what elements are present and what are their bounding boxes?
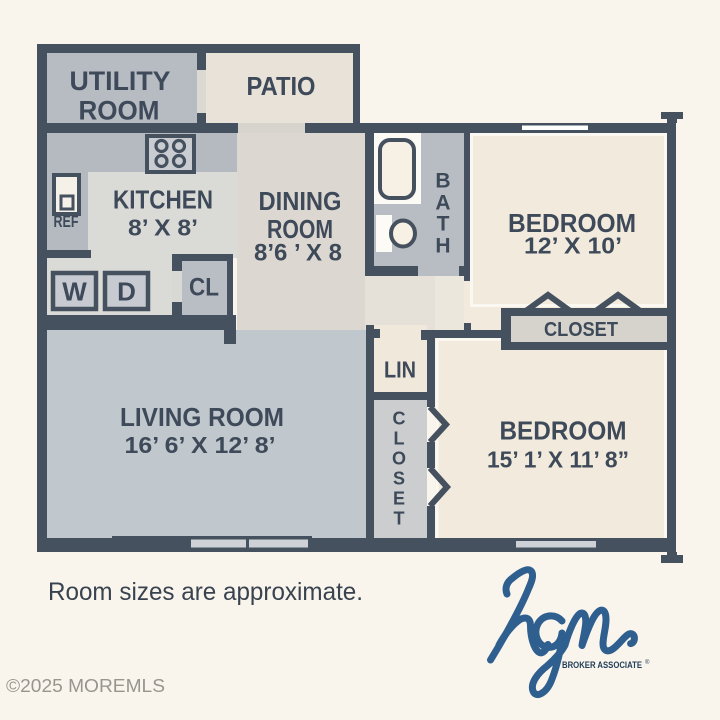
svg-text:B: B: [435, 170, 450, 193]
svg-text:CL: CL: [189, 274, 219, 302]
svg-text:BEDROOM: BEDROOM: [500, 415, 627, 445]
svg-text:L: L: [394, 429, 405, 449]
svg-text:Room sizes are approximate.: Room sizes are approximate.: [48, 578, 363, 606]
svg-text:UTILITY: UTILITY: [70, 66, 171, 96]
svg-text:8’ X 8’: 8’ X 8’: [128, 215, 198, 241]
svg-text:W: W: [62, 276, 87, 306]
svg-text:ROOM: ROOM: [79, 96, 160, 126]
svg-text:H: H: [435, 235, 450, 258]
svg-text:C: C: [393, 409, 406, 429]
svg-text:15’ 1’ X 11’ 8”: 15’ 1’ X 11’ 8”: [487, 446, 629, 472]
svg-text:LIVING ROOM: LIVING ROOM: [120, 402, 284, 432]
svg-text:CLOSET: CLOSET: [544, 319, 618, 341]
svg-text:®: ®: [645, 659, 650, 666]
svg-text:D: D: [117, 276, 136, 306]
svg-text:O: O: [392, 449, 406, 469]
svg-text:LIN: LIN: [384, 356, 416, 382]
svg-text:DINING: DINING: [259, 186, 342, 216]
svg-text:PATIO: PATIO: [247, 71, 316, 101]
svg-text:T: T: [437, 213, 450, 236]
svg-text:BROKER ASSOCIATE: BROKER ASSOCIATE: [562, 660, 642, 671]
svg-text:E: E: [393, 489, 405, 509]
svg-text:T: T: [394, 509, 405, 529]
svg-text:REF: REF: [54, 212, 79, 231]
svg-text:S: S: [393, 469, 405, 489]
svg-text:A: A: [435, 192, 450, 215]
svg-text:©2025 MOREMLS: ©2025 MOREMLS: [6, 676, 165, 696]
svg-text:16’ 6’ X 12’ 8’: 16’ 6’ X 12’ 8’: [125, 432, 276, 458]
svg-text:KITCHEN: KITCHEN: [113, 185, 213, 215]
svg-text:8’6 ’ X 8: 8’6 ’ X 8: [254, 240, 342, 267]
svg-text:12’ X 10’: 12’ X 10’: [524, 232, 622, 258]
